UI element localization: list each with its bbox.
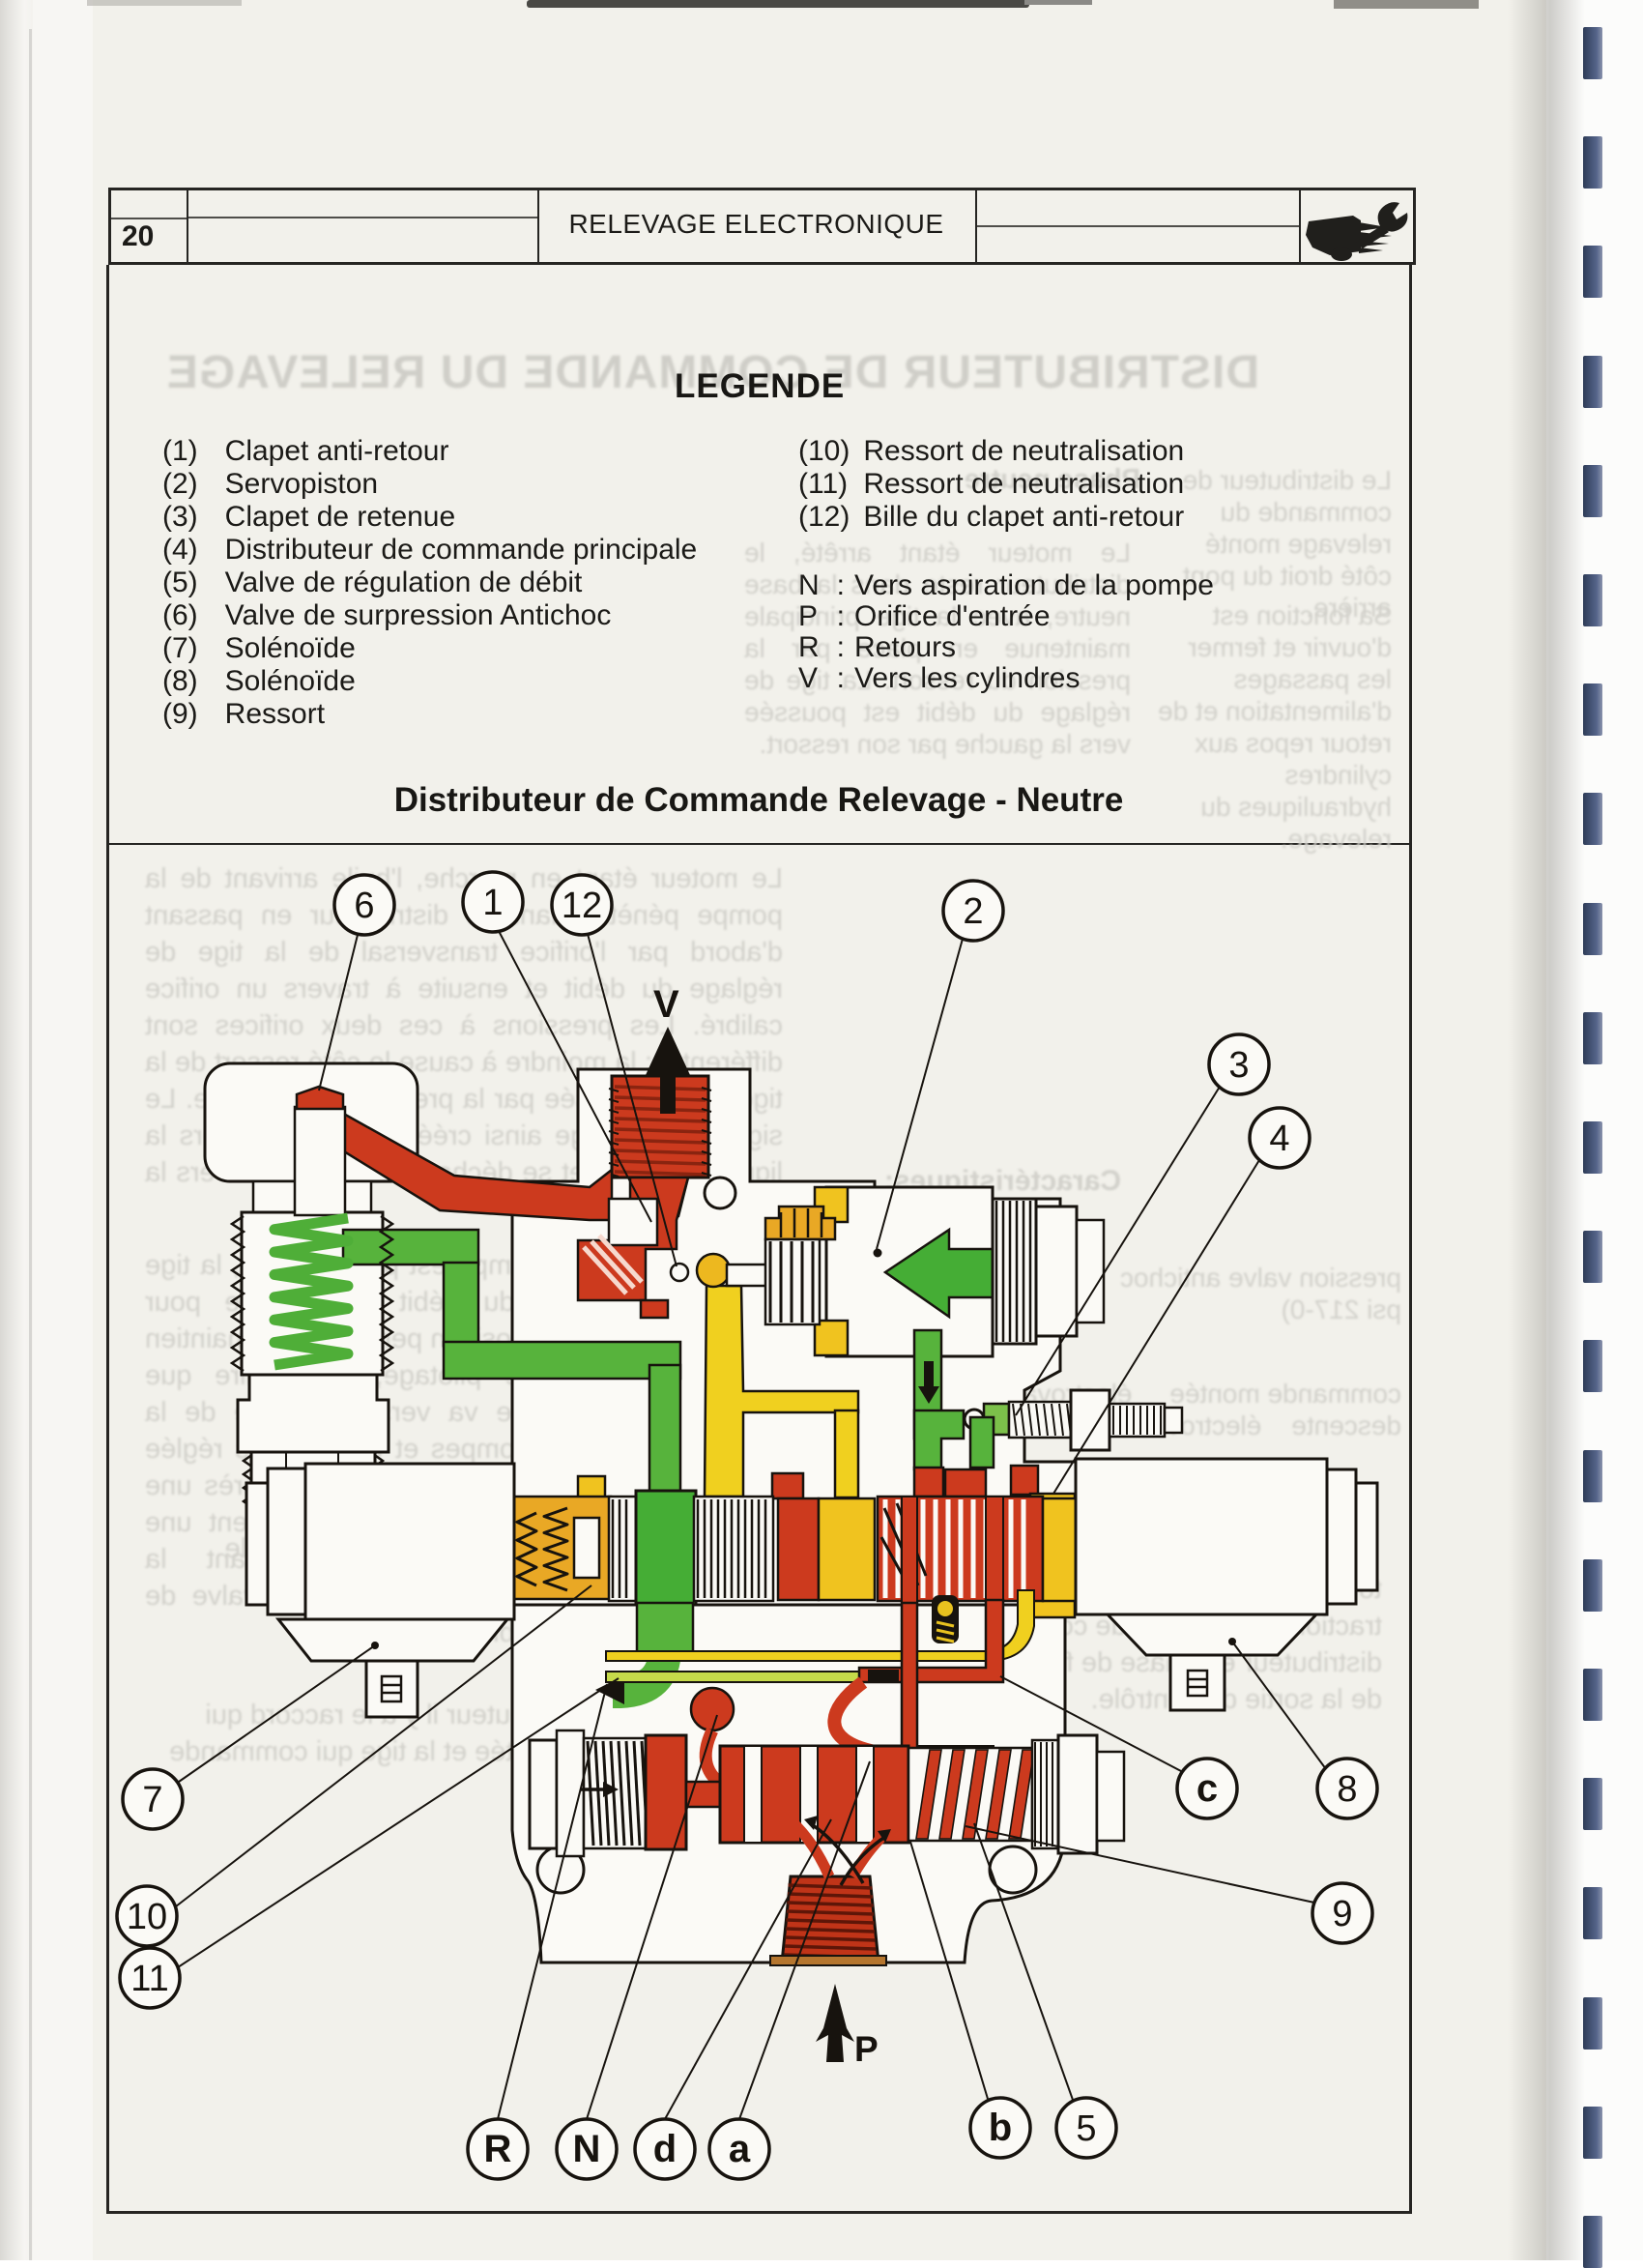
svg-text:9: 9 [1332, 1894, 1352, 1934]
svg-text:d: d [653, 2128, 677, 2170]
svg-text:P: P [854, 2029, 879, 2069]
svg-text:a: a [729, 2128, 751, 2170]
svg-text:7: 7 [142, 1780, 162, 1820]
svg-text:R: R [484, 2128, 512, 2170]
svg-text:V: V [653, 983, 679, 1026]
svg-text:c: c [1196, 1767, 1218, 1810]
svg-text:1: 1 [482, 883, 503, 923]
svg-text:4: 4 [1269, 1119, 1289, 1159]
svg-text:N: N [573, 2128, 601, 2170]
svg-text:5: 5 [1076, 2108, 1096, 2149]
svg-text:10: 10 [127, 1897, 167, 1937]
svg-text:6: 6 [354, 886, 374, 926]
svg-text:11: 11 [130, 1959, 168, 1999]
svg-text:2: 2 [963, 891, 983, 932]
svg-text:8: 8 [1337, 1769, 1357, 1810]
svg-text:12: 12 [562, 886, 602, 926]
svg-text:3: 3 [1228, 1045, 1249, 1086]
svg-text:b: b [989, 2107, 1012, 2149]
